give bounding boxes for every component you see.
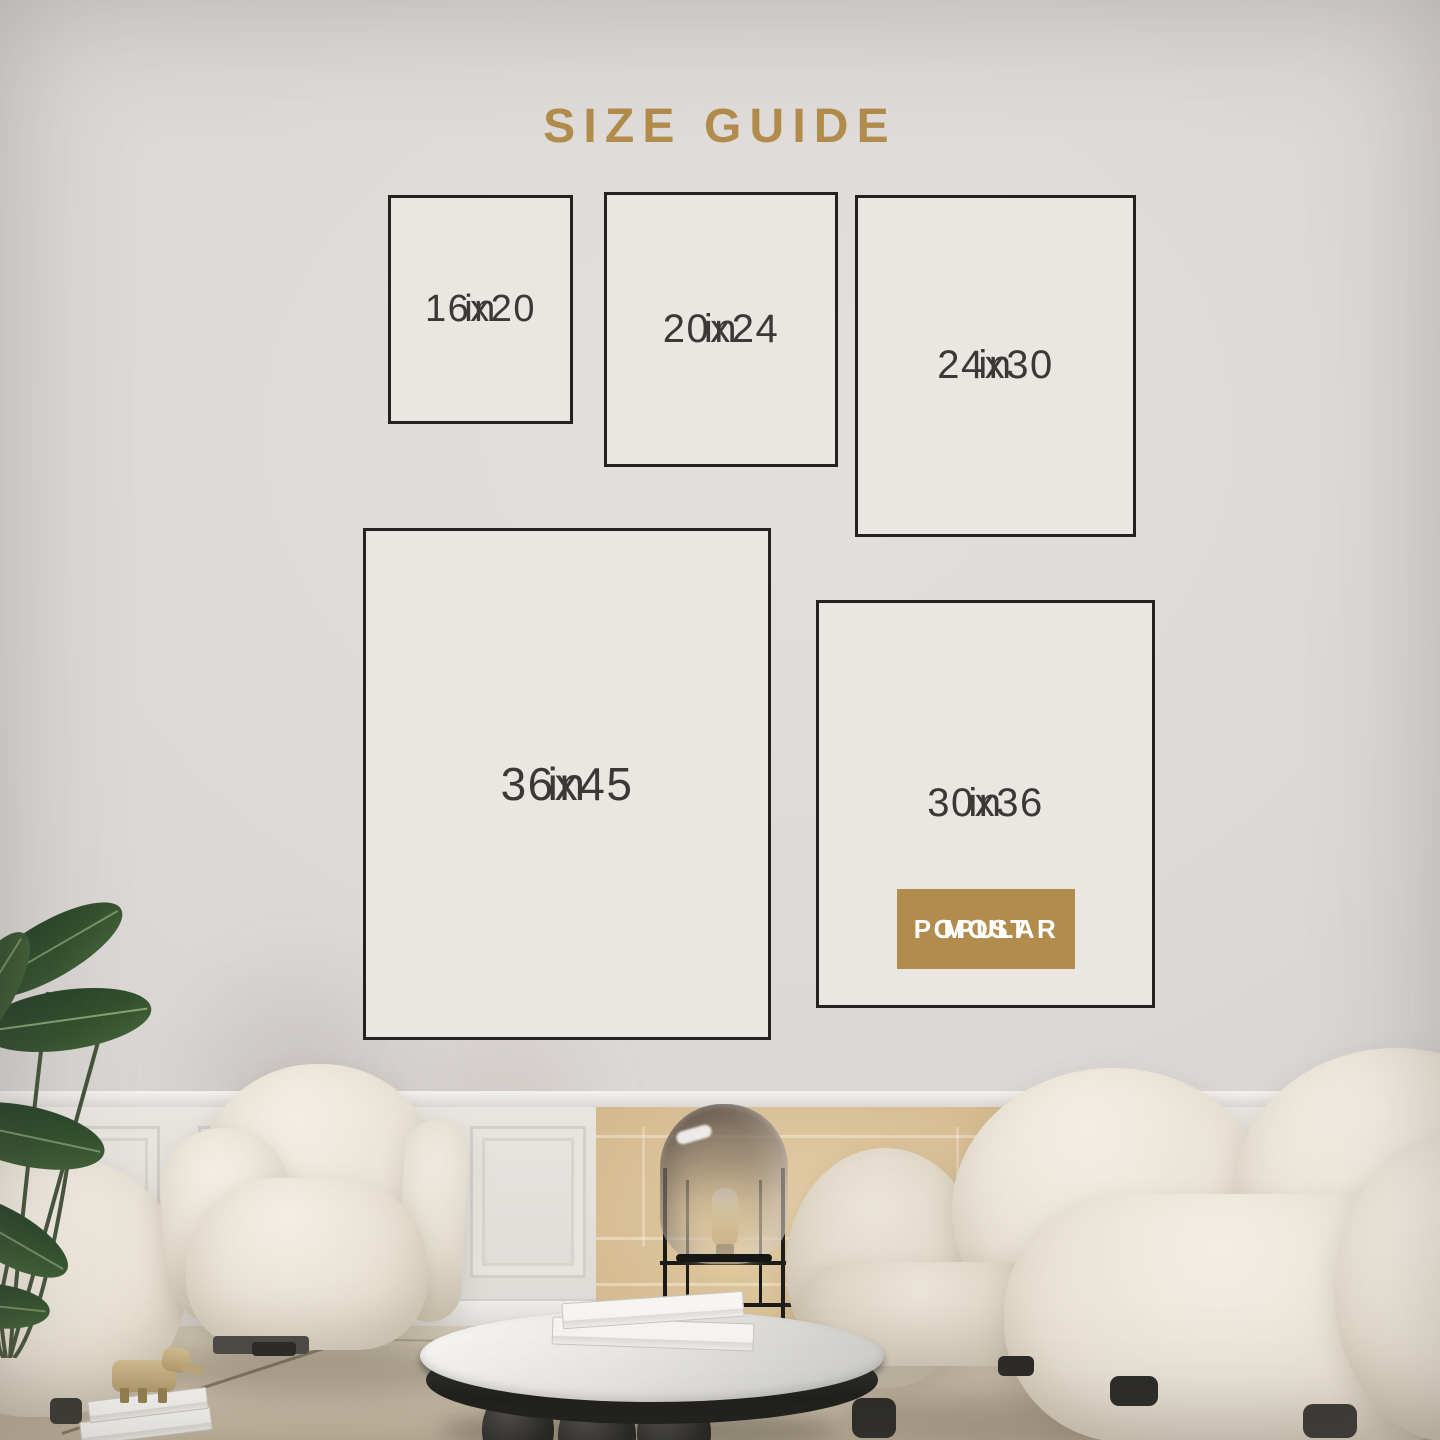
wooden-animal-figurine bbox=[0, 0, 1440, 1440]
figurine-leg bbox=[138, 1388, 147, 1403]
figurine-leg bbox=[158, 1388, 167, 1403]
figurine-jaw bbox=[179, 1361, 204, 1376]
living-room-size-guide-mockup: SIZE GUIDE 16x20 in 20x24 in 24x30 in 36… bbox=[0, 0, 1440, 1440]
figurine-leg bbox=[120, 1388, 129, 1403]
